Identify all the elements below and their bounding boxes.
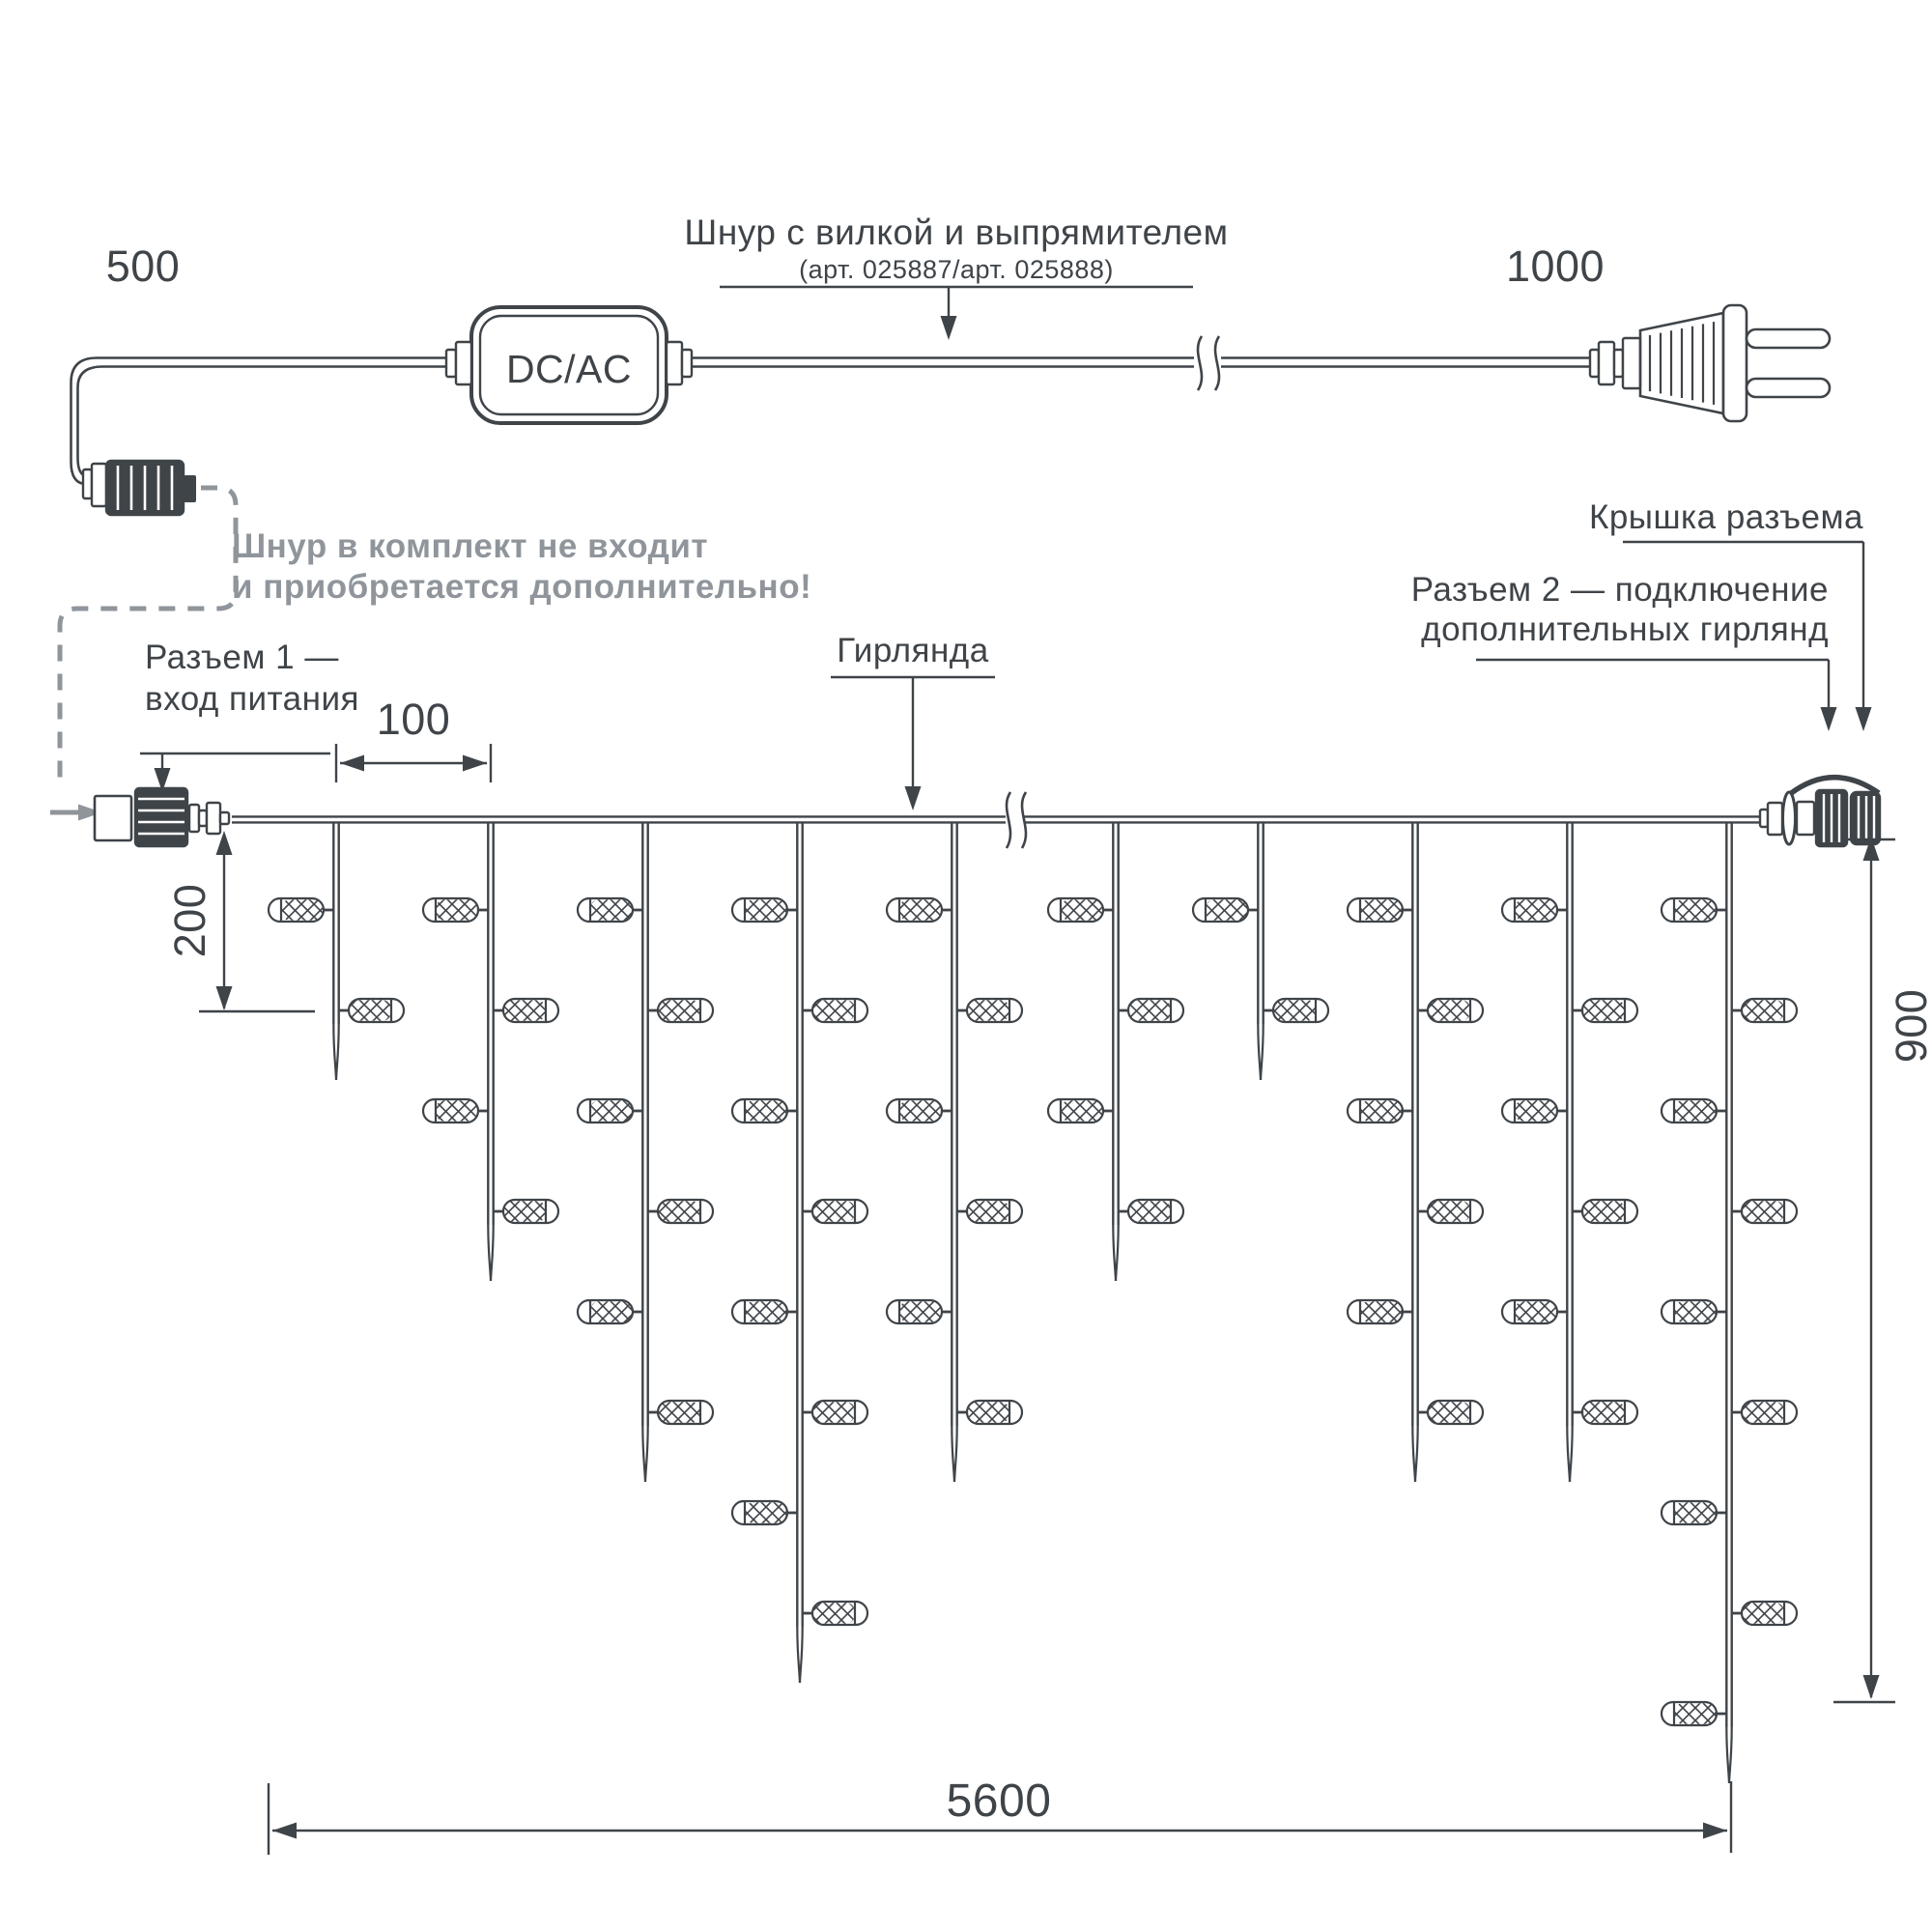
bulb-icon: [803, 1200, 867, 1223]
bulb-hatch: [281, 899, 324, 921]
bulb-icon: [1502, 1300, 1567, 1323]
bulb-hatch: [967, 1201, 1009, 1222]
bulb-hatch: [899, 899, 942, 921]
drop-needle-tip: [1116, 1225, 1119, 1281]
bulb-icon: [1662, 1702, 1726, 1725]
bulb-hatch: [1742, 1000, 1784, 1021]
cord-break-icon: [1215, 336, 1219, 390]
garland-drop: [1193, 822, 1328, 1080]
bulb-hatch: [503, 1201, 546, 1222]
bulb-icon: [423, 898, 488, 922]
bulb-icon: [1348, 1099, 1412, 1122]
bulb-icon: [1573, 1401, 1637, 1424]
garland-drop: [887, 822, 1022, 1482]
plug-in-label-1: Разъем 1 —: [145, 639, 339, 676]
garland-arrowhead: [905, 786, 922, 810]
bulb-icon: [578, 1300, 642, 1323]
bulb-icon: [1193, 898, 1258, 922]
bulb-icon: [732, 1501, 797, 1524]
bulb-icon: [269, 898, 333, 922]
bulb-icon: [957, 999, 1022, 1022]
icicle-garland-diagram: Шнур с вилкой и выпрямителем (арт. 02588…: [0, 0, 1932, 1932]
bulb-icon: [732, 1300, 797, 1323]
bulb-hatch: [503, 1000, 546, 1021]
bulb-hatch: [967, 1000, 1009, 1021]
dim-200-label: 200: [165, 884, 214, 958]
dim-5600-arrowhead: [272, 1823, 297, 1839]
bulb-icon: [339, 999, 404, 1022]
bulb-icon: [648, 1401, 713, 1424]
bulb-hatch: [436, 1100, 478, 1122]
bulb-icon: [648, 999, 713, 1022]
bulb-hatch: [1674, 1502, 1717, 1523]
garland-break-icon: [1007, 792, 1010, 848]
bulb-icon: [803, 1401, 867, 1424]
bulb-hatch: [1515, 899, 1557, 921]
bulb-hatch: [590, 1301, 633, 1322]
dim-100-arrowhead: [463, 755, 487, 772]
bulb-hatch: [590, 899, 633, 921]
bulb-icon: [1119, 999, 1183, 1022]
bulb-icon: [494, 1200, 558, 1223]
bulb-hatch: [1360, 1301, 1403, 1322]
bulb-hatch: [658, 1000, 700, 1021]
garland-drop: [423, 822, 558, 1281]
bulb-hatch: [1061, 899, 1103, 921]
dim-200-arrowhead: [216, 986, 233, 1010]
connector2-cap-ring: [1783, 792, 1796, 844]
bulb-hatch: [349, 1000, 391, 1021]
bulb-icon: [732, 898, 797, 922]
bulb-icon: [1732, 1200, 1797, 1223]
dim-900-arrowhead: [1863, 1675, 1880, 1699]
cord-break-icon: [1198, 336, 1202, 390]
bulb-hatch: [1360, 1100, 1403, 1122]
bulb-hatch: [745, 1100, 787, 1122]
garland-drawing: [232, 792, 1797, 1783]
connector-2-icon: [1760, 778, 1880, 846]
bulb-hatch: [967, 1402, 1009, 1423]
garland-drop: [732, 822, 867, 1683]
dim-100-arrowhead: [340, 755, 364, 772]
bulb-hatch: [1674, 1301, 1717, 1322]
dim-900-label: 900: [1887, 989, 1932, 1064]
bulb-hatch: [1515, 1100, 1557, 1122]
bulb-hatch: [1674, 1100, 1717, 1122]
garland-drop: [1662, 822, 1797, 1783]
bulb-icon: [1573, 999, 1637, 1022]
bulb-icon: [494, 999, 558, 1022]
plug-coupler: [1590, 350, 1599, 377]
drop-needle-tip: [1729, 1727, 1732, 1783]
garland-break-icon: [1022, 792, 1026, 848]
drop-needle-tip: [336, 1024, 339, 1080]
bulb-hatch: [1428, 1201, 1470, 1222]
bulb-icon: [1502, 898, 1567, 922]
connector1-step: [207, 803, 220, 834]
garland-drop: [1502, 822, 1637, 1482]
drop-needle-tip: [645, 1426, 648, 1482]
note-line-2: и приобретается дополнительно!: [232, 568, 811, 606]
bulb-hatch: [1674, 899, 1717, 921]
cord-title: Шнур с вилкой и выпрямителем: [684, 213, 1228, 252]
plug-prong: [1747, 329, 1830, 348]
drop-needle-tip: [954, 1426, 957, 1482]
bulb-hatch: [1742, 1402, 1784, 1423]
bulb-hatch: [1360, 899, 1403, 921]
bulb-hatch: [812, 1000, 855, 1021]
bulb-icon: [803, 999, 867, 1022]
bulb-icon: [1662, 1300, 1726, 1323]
bulb-hatch: [1061, 1100, 1103, 1122]
bulb-hatch: [1582, 1201, 1625, 1222]
bulb-icon: [1662, 898, 1726, 922]
cap-arrowhead: [1856, 707, 1872, 731]
bulb-icon: [1732, 1602, 1797, 1625]
bulb-hatch: [1206, 899, 1248, 921]
bulb-hatch: [1273, 1000, 1316, 1021]
plug-coupler: [1614, 350, 1623, 377]
connector1-step: [189, 805, 199, 832]
bulb-hatch: [812, 1603, 855, 1624]
plug-out-arrowhead: [1821, 707, 1837, 731]
bulb-hatch: [1582, 1000, 1625, 1021]
bulb-hatch: [745, 1502, 787, 1523]
bulb-hatch: [899, 1301, 942, 1322]
bulb-hatch: [1128, 1201, 1171, 1222]
note-line-1: Шнур в комплект не входит: [232, 527, 708, 565]
bulb-hatch: [590, 1100, 633, 1122]
dim-1000-label: 1000: [1506, 241, 1605, 291]
cap-label: Крышка разъема: [1589, 498, 1863, 536]
garland-drop: [1048, 822, 1183, 1281]
bulb-icon: [423, 1099, 488, 1122]
bulb-hatch: [1128, 1000, 1171, 1021]
bulb-icon: [1573, 1200, 1637, 1223]
bulb-icon: [887, 898, 952, 922]
bulb-hatch: [1674, 1703, 1717, 1724]
dim-5600-label: 5600: [947, 1776, 1052, 1827]
bulb-icon: [1732, 999, 1797, 1022]
ac-plug-icon: [1590, 305, 1830, 421]
bulb-icon: [1418, 1401, 1483, 1424]
plug-coupler: [1623, 338, 1640, 388]
dcac-nub: [446, 350, 456, 377]
bulb-icon: [1048, 1099, 1113, 1122]
drop-needle-tip: [1570, 1426, 1573, 1482]
cord-coupler: [92, 464, 106, 506]
bulb-hatch: [1515, 1301, 1557, 1322]
garland-drop: [1348, 822, 1483, 1482]
connector1-step: [220, 812, 229, 824]
dim-100-label: 100: [377, 695, 451, 744]
plug-out-label-1: Разъем 2 — подключение: [1411, 571, 1829, 609]
bulb-icon: [1048, 898, 1113, 922]
bulb-hatch: [812, 1201, 855, 1222]
bulb-icon: [1662, 1099, 1726, 1122]
bulb-icon: [578, 1099, 642, 1122]
bulb-icon: [1732, 1401, 1797, 1424]
bulb-icon: [648, 1200, 713, 1223]
bulb-icon: [578, 898, 642, 922]
bulb-hatch: [745, 899, 787, 921]
plug-prong: [1747, 379, 1830, 397]
bulb-icon: [1264, 999, 1328, 1022]
power-cord-drawing: [71, 336, 1591, 515]
drop-needle-tip: [491, 1225, 494, 1281]
bulb-hatch: [899, 1100, 942, 1122]
bulb-hatch: [1582, 1402, 1625, 1423]
bulb-hatch: [745, 1301, 787, 1322]
connector2-body: [1797, 802, 1814, 835]
bulb-icon: [957, 1401, 1022, 1424]
dcac-nub: [667, 342, 682, 384]
bulb-hatch: [1742, 1201, 1784, 1222]
bulb-icon: [1348, 898, 1412, 922]
bulb-hatch: [436, 899, 478, 921]
bulb-hatch: [1428, 1402, 1470, 1423]
bulb-icon: [957, 1200, 1022, 1223]
connector-1-icon: [95, 788, 229, 846]
bulb-hatch: [812, 1402, 855, 1423]
plug-out-label-2: дополнительных гирлянд: [1421, 611, 1829, 648]
drop-needle-tip: [1415, 1426, 1418, 1482]
dim-500-label: 500: [106, 241, 181, 291]
cord-subtitle: (арт. 025887/арт. 025888): [799, 255, 1114, 284]
bulb-icon: [887, 1300, 952, 1323]
diagram-page: Шнур с вилкой и выпрямителем (арт. 02588…: [0, 0, 1932, 1932]
dcac-nub: [682, 350, 692, 377]
dcac-nub: [456, 342, 471, 384]
bulb-icon: [887, 1099, 952, 1122]
garland-drop: [269, 822, 404, 1080]
dcac-label: DC/AC: [506, 347, 632, 391]
dim-5600-arrowhead: [1703, 1823, 1727, 1839]
cord-title-arrowhead: [941, 316, 957, 340]
connector1-plug: [95, 796, 131, 840]
cord-coupler: [83, 469, 92, 498]
connector2-step: [1768, 803, 1782, 835]
drop-needle-tip: [800, 1627, 803, 1683]
bulb-icon: [1119, 1200, 1183, 1223]
bulb-icon: [1418, 999, 1483, 1022]
connector1-screw: [135, 788, 187, 846]
drop-needle-tip: [1261, 1024, 1264, 1080]
bulb-icon: [1502, 1099, 1567, 1122]
dashed-cord-path: [60, 488, 236, 784]
bulb-icon: [1418, 1200, 1483, 1223]
bulb-icon: [1348, 1300, 1412, 1323]
plug-in-label-2: вход питания: [145, 680, 359, 718]
plug-face: [1723, 305, 1747, 421]
bulb-icon: [732, 1099, 797, 1122]
plug-coupler: [1599, 342, 1614, 384]
garland-drop: [578, 822, 713, 1482]
cord-connector-tip: [184, 475, 196, 502]
bulb-hatch: [658, 1402, 700, 1423]
bulb-hatch: [1742, 1603, 1784, 1624]
garland-label: Гирлянда: [837, 632, 988, 669]
bulb-icon: [803, 1602, 867, 1625]
bulb-hatch: [658, 1201, 700, 1222]
bulb-hatch: [1428, 1000, 1470, 1021]
bulb-icon: [1662, 1501, 1726, 1524]
